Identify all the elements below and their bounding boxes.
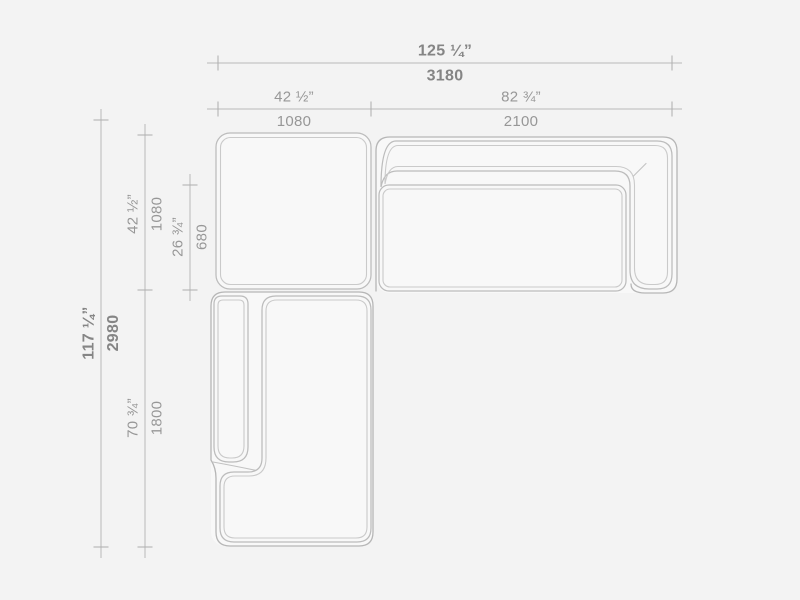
sofa-drawing — [211, 133, 677, 546]
dim-top-left-width-mm-label: 1080 — [277, 113, 312, 130]
dim-overall-width-inches-label: 125 ¼” — [418, 43, 472, 60]
technical-drawing-canvas: 125 ¼” 3180 42 ½” 1080 82 ¾” 2100 117 ¼”… — [0, 0, 800, 600]
dim-overall-depth-inches-label: 117 ¼” — [81, 306, 98, 359]
module-chaise-top-left — [216, 133, 371, 289]
sofa-plan-svg: 125 ¼” 3180 42 ½” 1080 82 ¾” 2100 117 ¼”… — [0, 0, 800, 600]
dim-overall-depth-mm-label: 2980 — [105, 315, 122, 352]
dimensions: 125 ¼” 3180 42 ½” 1080 82 ¾” 2100 117 ¼”… — [81, 43, 683, 559]
sofa-seat-cushion-outline — [379, 185, 626, 291]
dim-section-widths: 42 ½” 1080 82 ¾” 2100 — [207, 89, 682, 131]
dim-top-left-width-inches-label: 42 ½” — [274, 89, 314, 106]
dim-overall-width: 125 ¼” 3180 — [207, 43, 682, 85]
dim-left-top-depth-mm-label: 1080 — [149, 197, 166, 232]
dim-inner-seat-depth-inches-label: 26 ¾” — [170, 217, 187, 257]
dim-left-top-depth-inches-label: 42 ½” — [125, 194, 142, 234]
module-chaise-bottom — [211, 292, 373, 546]
dim-overall-depth: 117 ¼” 2980 — [81, 109, 123, 558]
dim-top-right-width-mm-label: 2100 — [504, 113, 539, 130]
bottom-backrest-outer — [214, 296, 248, 462]
dim-overall-width-mm-label: 3180 — [427, 68, 464, 85]
dim-left-sections: 42 ½” 1080 70 ¾” 1800 — [125, 124, 166, 558]
module-sofa-right — [376, 137, 677, 293]
dim-top-right-width-inches-label: 82 ¾” — [501, 89, 541, 106]
chaise-outline — [216, 133, 371, 289]
dim-inner-seat-depth: 26 ¾” 680 — [170, 174, 211, 301]
dim-inner-seat-depth-mm-label: 680 — [194, 224, 211, 250]
dim-left-bottom-length-inches-label: 70 ¾” — [125, 398, 142, 438]
dim-left-bottom-length-mm-label: 1800 — [149, 401, 166, 436]
